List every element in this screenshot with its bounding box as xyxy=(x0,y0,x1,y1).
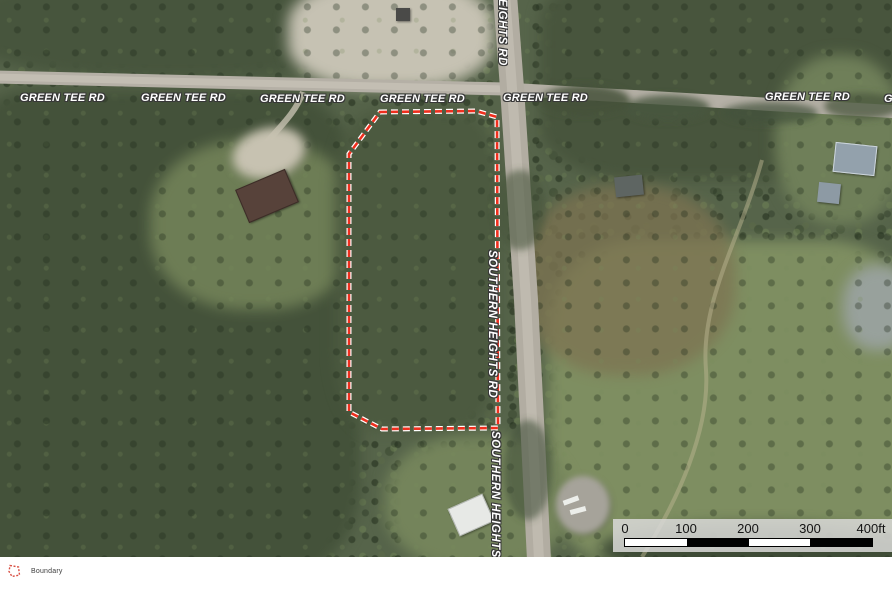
house xyxy=(614,175,644,198)
parcel-boundary-casing xyxy=(349,111,498,429)
scale-segment xyxy=(625,539,687,546)
boundary-swatch-icon xyxy=(7,563,22,579)
map-vector-overlay xyxy=(0,0,892,557)
map-viewport[interactable]: GREEN TEE RD GREEN TEE RD GREEN TEE RD G… xyxy=(0,0,892,557)
scale-tick: 200 xyxy=(737,522,759,535)
street-label-southern-heights-rd: SOUTHERN HEIGHTS RD xyxy=(486,250,498,398)
street-label-green-tee-rd: GREEN TEE RD xyxy=(20,93,105,104)
legend-label: Boundary xyxy=(31,568,63,575)
parcel-report-screenshot: GREEN TEE RD GREEN TEE RD GREEN TEE RD G… xyxy=(0,0,892,600)
scale-segment xyxy=(687,539,749,546)
scale-segment xyxy=(749,539,811,546)
scale-end-label: 400ft xyxy=(857,522,886,535)
parcel-boundary-line xyxy=(349,111,498,429)
roads xyxy=(0,0,892,557)
small-structure xyxy=(396,8,410,21)
scale-tick: 300 xyxy=(799,522,821,535)
shed xyxy=(817,182,841,204)
street-label-green-tee-rd: GREEN TEE RD xyxy=(260,94,345,105)
street-label-green-tee-rd-partial: GREEN TEE RD xyxy=(884,94,892,105)
legend-footer: Boundary xyxy=(0,557,892,600)
house xyxy=(833,142,878,176)
parcel-boundary xyxy=(349,111,498,429)
street-label-green-tee-rd: GREEN TEE RD xyxy=(141,93,226,104)
legend-item-boundary: Boundary xyxy=(7,563,63,579)
scale-tick: 0 xyxy=(621,522,628,535)
street-label-green-tee-rd: GREEN TEE RD xyxy=(503,93,588,104)
street-label-heights-rd: HEIGHTS RD xyxy=(496,0,508,66)
street-label-green-tee-rd: GREEN TEE RD xyxy=(765,92,850,103)
street-label-southern-heights-rd: SOUTHERN HEIGHTS RD xyxy=(489,431,501,557)
street-label-green-tee-rd: GREEN TEE RD xyxy=(380,94,465,105)
scale-bar-segments xyxy=(624,538,873,547)
scale-segment xyxy=(810,539,872,546)
scale-bar: 0 100 200 300 400ft xyxy=(613,519,892,552)
scale-tick: 100 xyxy=(675,522,697,535)
